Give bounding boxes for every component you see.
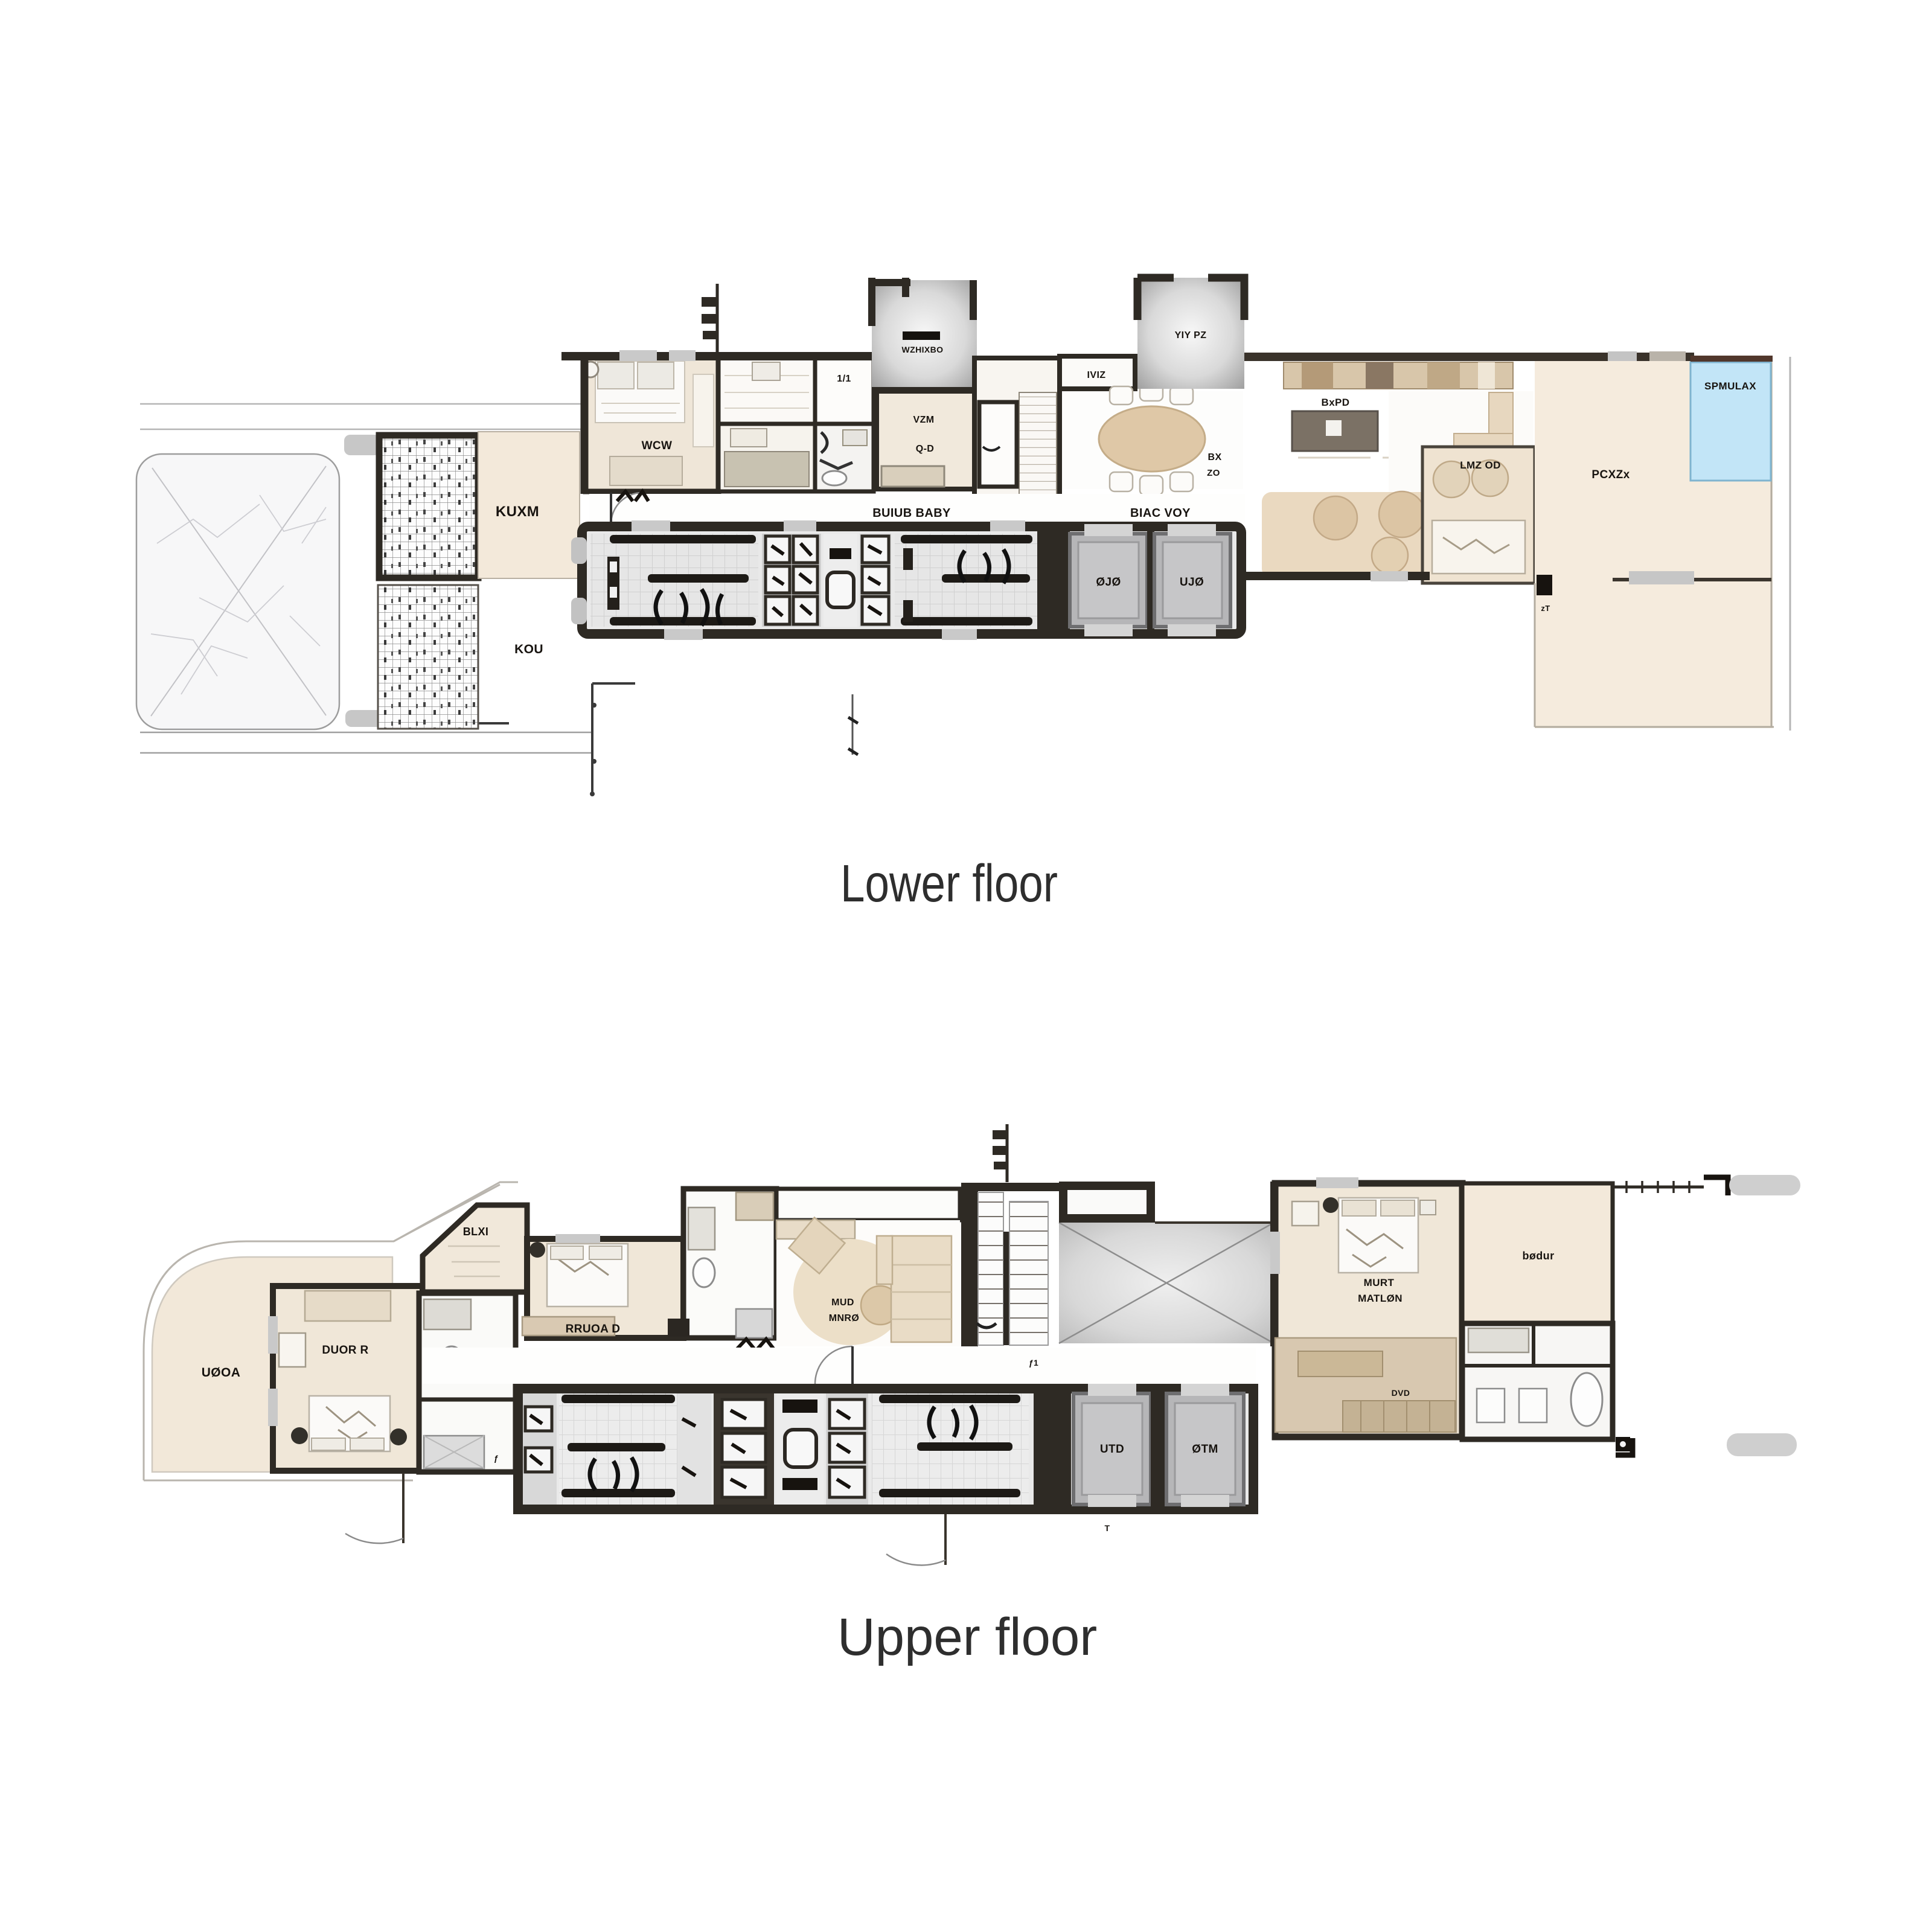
svg-text:SPMULAX: SPMULAX: [1704, 380, 1756, 392]
svg-text:VZM: VZM: [913, 415, 935, 425]
svg-text:WZHIXBO: WZHIXBO: [902, 345, 944, 354]
svg-text:BUIUB BABY: BUIUB BABY: [872, 507, 951, 520]
svg-text:LMZ OD: LMZ OD: [1460, 459, 1501, 471]
svg-text:MNRØ: MNRØ: [829, 1313, 859, 1323]
svg-text:RRUOA D: RRUOA D: [566, 1323, 621, 1335]
svg-text:KUXM: KUXM: [496, 504, 539, 520]
svg-text:PCXZx: PCXZx: [1591, 469, 1630, 481]
svg-text:Lower floor: Lower floor: [840, 854, 1058, 913]
svg-text:MATLØN: MATLØN: [1358, 1293, 1403, 1304]
svg-text:UØOA: UØOA: [202, 1366, 241, 1380]
svg-text:KOU: KOU: [514, 642, 543, 656]
svg-text:bødur: bødur: [1523, 1250, 1555, 1262]
svg-text:BLXI: BLXI: [463, 1226, 489, 1238]
svg-text:ØTM: ØTM: [1192, 1443, 1218, 1456]
svg-text:ZO: ZO: [1207, 468, 1220, 478]
svg-text:BxPD: BxPD: [1322, 397, 1350, 408]
svg-text:zT: zT: [1541, 604, 1550, 613]
svg-text:BX: BX: [1207, 452, 1221, 462]
svg-text:BIAC VOY: BIAC VOY: [1130, 507, 1191, 520]
svg-text:MURT: MURT: [1364, 1277, 1395, 1288]
svg-text:Upper floor: Upper floor: [837, 1608, 1097, 1666]
svg-text:WCW: WCW: [642, 440, 673, 452]
svg-text:IVIZ: IVIZ: [1087, 370, 1106, 380]
svg-text:ƒ: ƒ: [494, 1453, 499, 1463]
svg-text:T: T: [1105, 1523, 1110, 1533]
svg-text:DVD: DVD: [1392, 1388, 1410, 1398]
svg-text:MUD: MUD: [831, 1297, 854, 1308]
svg-text:Q-D: Q-D: [916, 444, 935, 454]
svg-text:UJØ: UJØ: [1180, 576, 1204, 589]
svg-text:DUOR R: DUOR R: [322, 1344, 368, 1357]
svg-text:ØJØ: ØJØ: [1096, 576, 1121, 589]
svg-text:ƒ1: ƒ1: [1029, 1358, 1038, 1367]
svg-text:YIY PZ: YIY PZ: [1175, 330, 1207, 341]
svg-text:1/1: 1/1: [837, 374, 851, 384]
svg-text:UTD: UTD: [1100, 1443, 1124, 1456]
